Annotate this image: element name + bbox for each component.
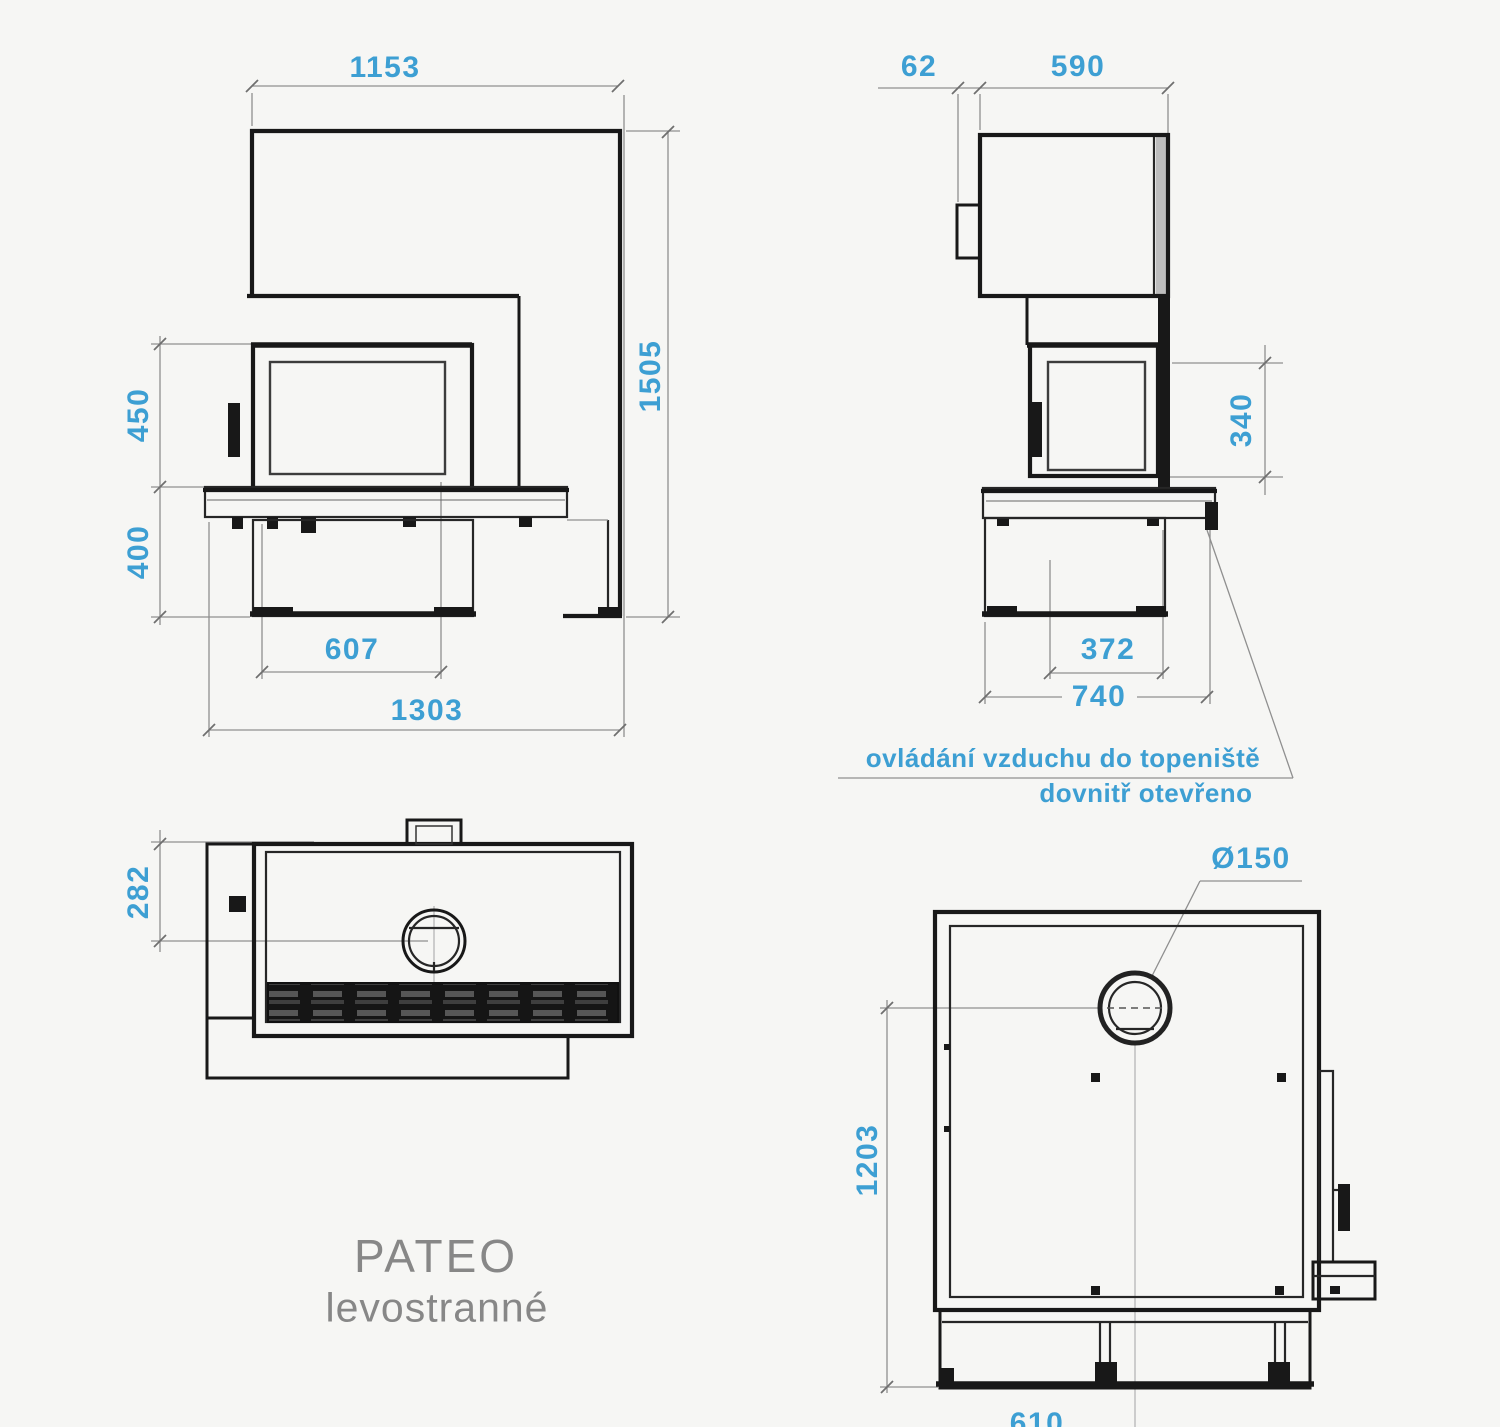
annotation-air-control-line2: dovnitř otevřeno xyxy=(1039,780,1252,806)
dim-side-depth-top: 590 xyxy=(1051,52,1106,82)
dim-front-base-height: 400 xyxy=(124,525,154,580)
product-variant: levostranné xyxy=(326,1288,549,1329)
dim-top-flue-offset: 282 xyxy=(124,865,154,920)
dim-front-height-total: 1505 xyxy=(636,340,666,413)
dim-side-depth-total: 740 xyxy=(1072,682,1127,712)
top-view-linework xyxy=(151,820,632,1078)
dim-plan-flue-diameter: Ø150 xyxy=(1211,844,1290,874)
dim-side-door-height: 340 xyxy=(1227,393,1257,448)
dim-front-width-top: 1153 xyxy=(349,53,420,83)
dim-front-door-height: 450 xyxy=(124,388,154,443)
dim-front-width-total: 1303 xyxy=(391,696,464,726)
dim-plan-depth-total: 1203 xyxy=(853,1124,883,1197)
product-name: PATEO xyxy=(354,1233,518,1279)
annotation-air-control-line1: ovládání vzduchu do topeniště xyxy=(866,745,1260,771)
technical-drawing-page: 1153 1505 450 400 607 1303 62 590 340 37… xyxy=(0,0,1500,1427)
front-view-linework xyxy=(151,80,680,737)
dim-side-handle-depth: 62 xyxy=(901,52,937,82)
dim-plan-width-bottom: 610 xyxy=(1010,1409,1065,1427)
drawing-linework xyxy=(0,0,1500,1427)
dim-side-inner-depth: 372 xyxy=(1081,635,1136,665)
dim-front-door-width: 607 xyxy=(325,635,380,665)
plan-view-linework xyxy=(880,881,1375,1427)
